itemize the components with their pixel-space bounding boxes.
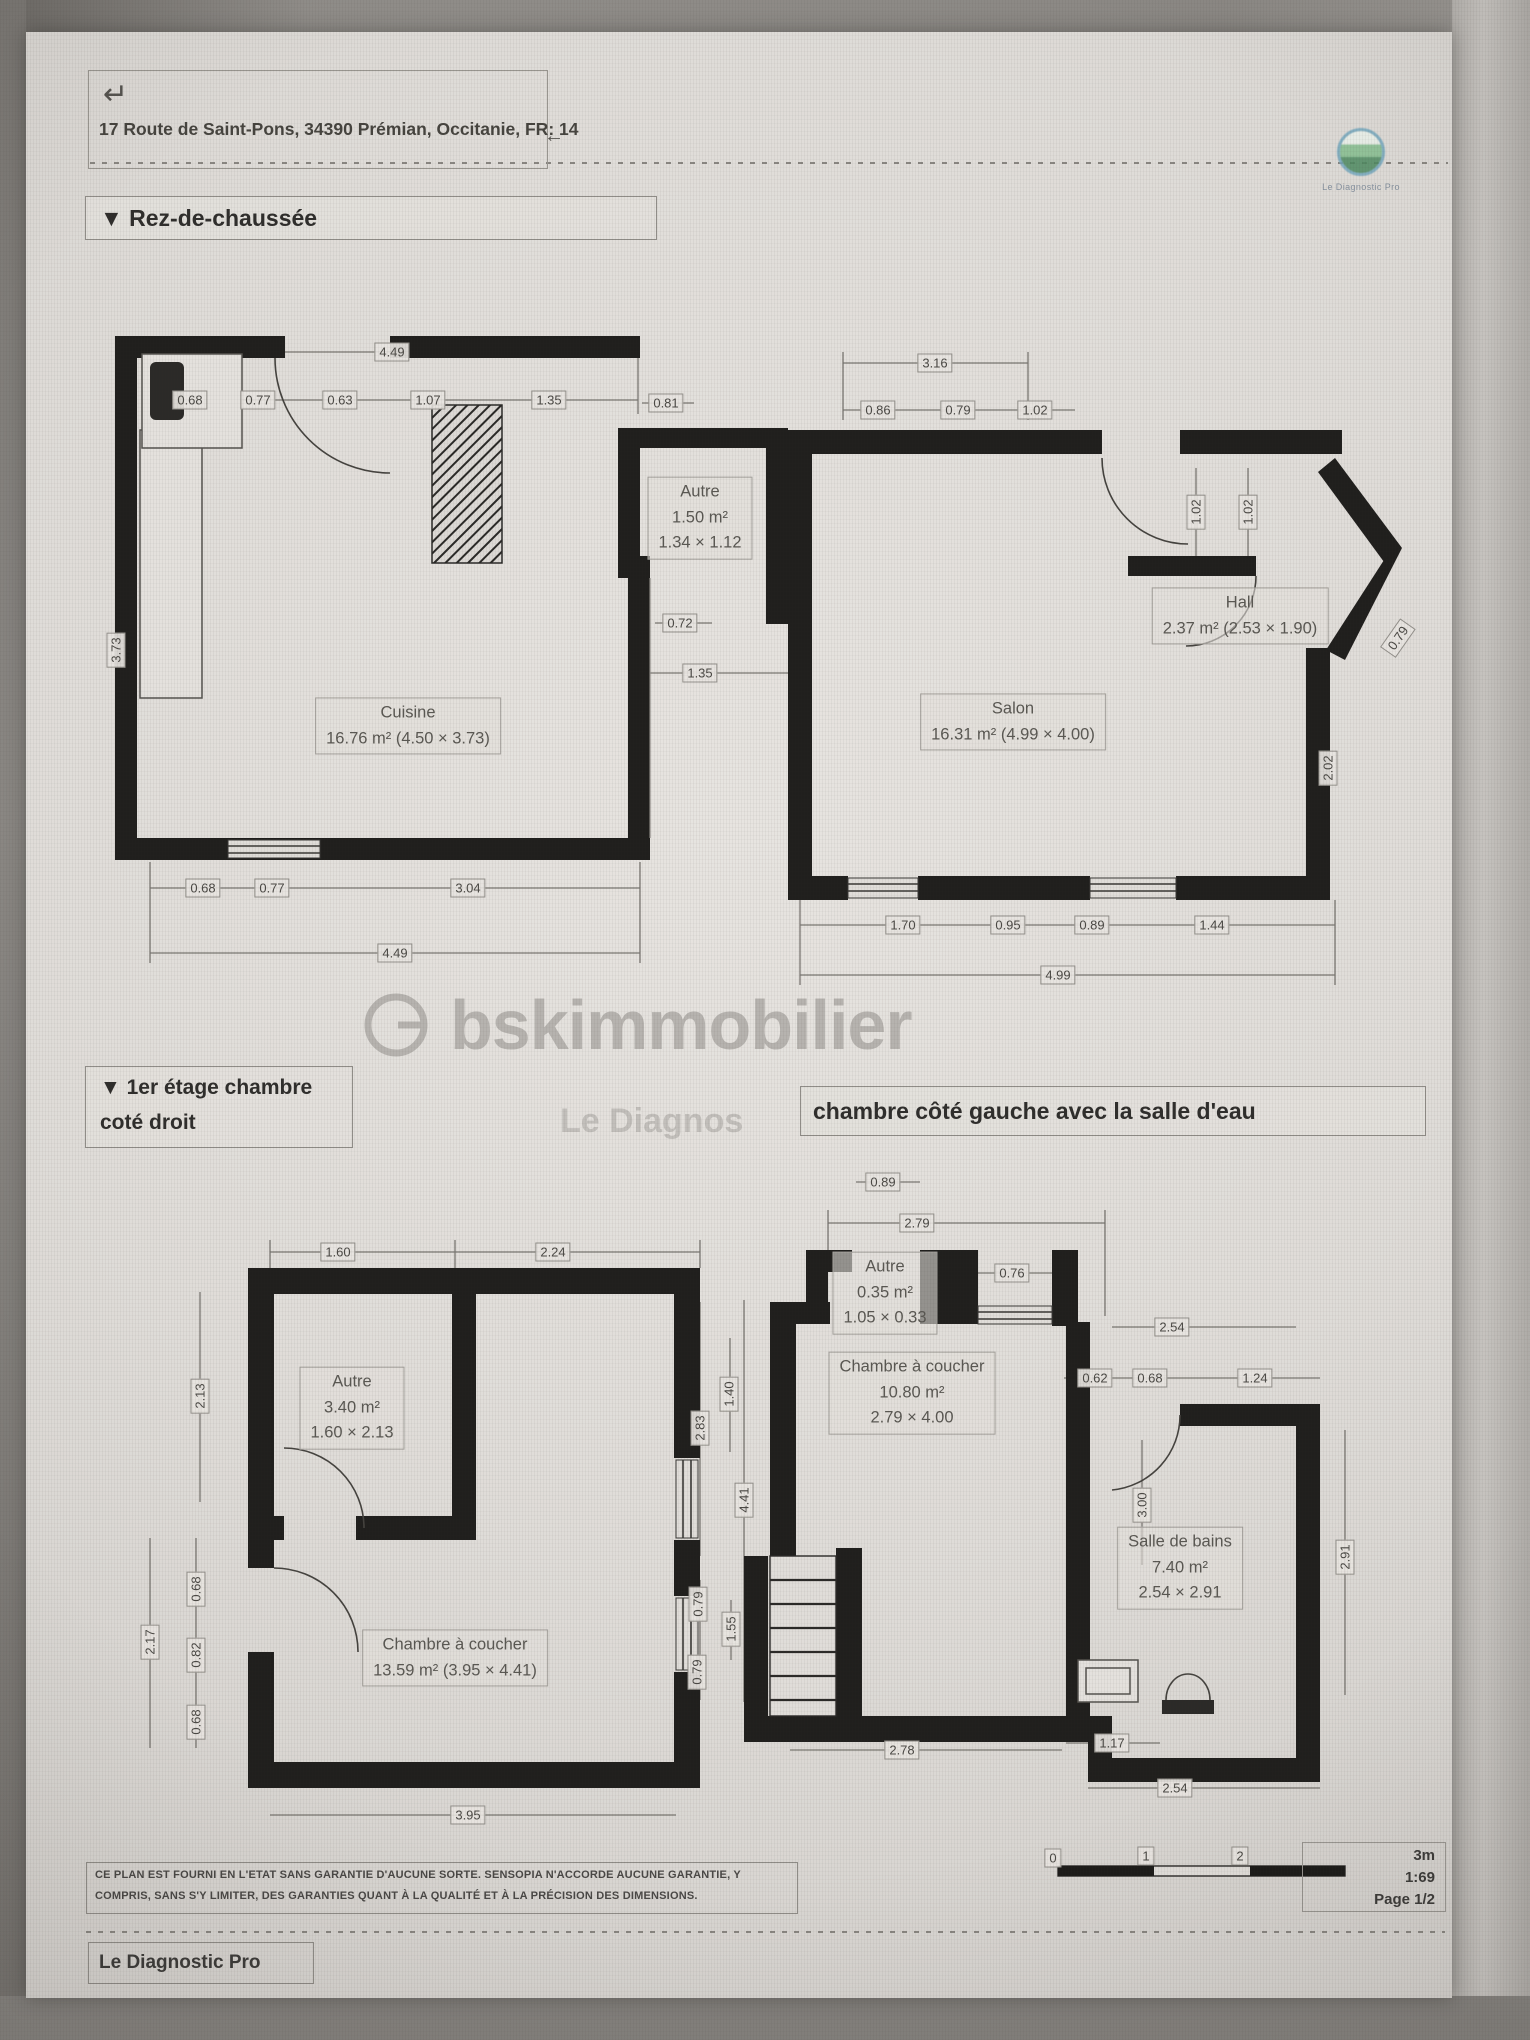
kitchen-fixtures (140, 354, 242, 698)
section-title-first-floor-right: ▼ 1er étage chambre coté droit (85, 1066, 353, 1148)
scale-unit: 3m (1303, 1845, 1435, 1867)
stairs-hatch (432, 405, 502, 563)
first-floor-left-bedroom-plan (744, 1182, 1345, 1788)
address-header-box: ↵ 17 Route de Saint-Pons, 34390 Prémian,… (88, 70, 548, 169)
toilet-icon (1166, 1674, 1210, 1700)
ground-floor-walls (115, 336, 1402, 900)
door-arcs-f1-left (274, 1448, 364, 1652)
diagnostic-pro-brand-box: Le Diagnostic Pro (88, 1942, 314, 1984)
return-arrow-icon: ↵ (103, 77, 128, 112)
f1-right-windows (978, 1306, 1052, 1324)
logo-caption: Le Diagnostic Pro (1316, 182, 1406, 192)
f1-stairs (770, 1556, 836, 1716)
scale-ratio: 1:69 (1303, 1867, 1435, 1889)
ground-floor-plan (115, 336, 1402, 985)
property-address: 17 Route de Saint-Pons, 34390 Prémian, O… (99, 119, 578, 140)
logo-icon (1337, 128, 1385, 176)
first-floor-right-bedroom-plan (150, 1240, 744, 1815)
section-title-first-floor-left: chambre côté gauche avec la salle d'eau (800, 1086, 1426, 1136)
page-number: Page 1/2 (1303, 1889, 1435, 1911)
bathroom-fixtures (1078, 1660, 1214, 1714)
f1-left-walls (248, 1268, 700, 1788)
scale-info-box: 3m 1:69 Page 1/2 (1302, 1842, 1446, 1912)
section-title-ground-floor: ▼ Rez-de-chaussée (85, 196, 657, 240)
bathroom-door-arc (1112, 1415, 1180, 1490)
diagnostic-pro-logo: Le Diagnostic Pro (1316, 128, 1406, 192)
disclaimer-text: CE PLAN EST FOURNI EN L'ETAT SANS GARANT… (86, 1862, 798, 1914)
back-arrow-icon: ← (544, 125, 564, 148)
door-arcs-ground (275, 358, 1256, 646)
screen-photo: bskimmobilier Le Diagnos ↵ 17 Route de S… (0, 0, 1530, 2040)
floor-plan-drawing (0, 0, 1530, 2040)
